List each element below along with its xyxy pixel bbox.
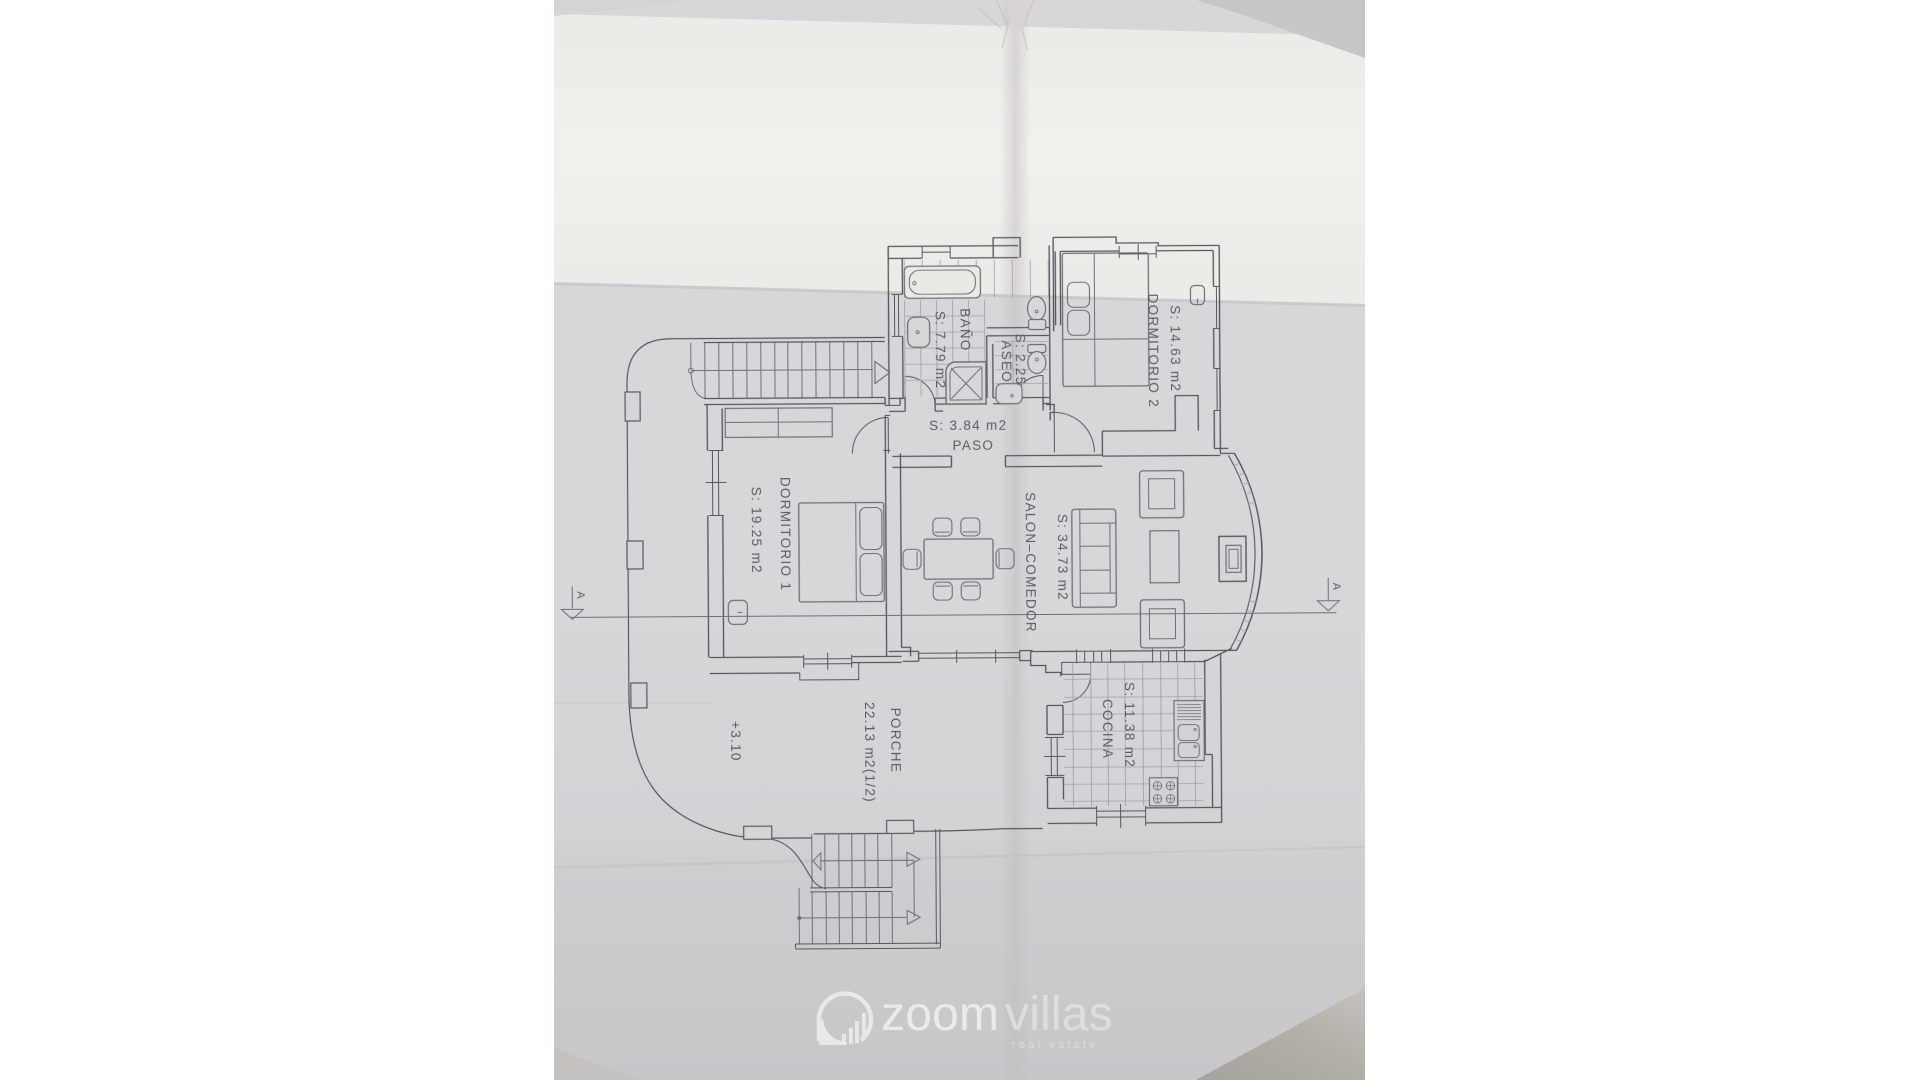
svg-text:PASO: PASO <box>952 438 994 453</box>
svg-text:SALON–COMEDOR: SALON–COMEDOR <box>1023 492 1039 633</box>
svg-text:S: 34.73 m2: S: 34.73 m2 <box>1055 514 1071 601</box>
svg-text:A: A <box>1330 583 1342 591</box>
svg-text:BAÑO: BAÑO <box>958 308 973 352</box>
svg-text:A: A <box>574 591 586 599</box>
svg-text:S: 7.79 m2: S: 7.79 m2 <box>933 311 948 389</box>
svg-text:villas: villas <box>1005 988 1113 1041</box>
svg-text:+3.10: +3.10 <box>728 721 743 762</box>
svg-text:22.13 m2(1/2): 22.13 m2(1/2) <box>862 702 878 803</box>
svg-text:DORMITORIO 1: DORMITORIO 1 <box>778 477 794 591</box>
svg-text:S: 11.38 m2: S: 11.38 m2 <box>1122 682 1138 768</box>
svg-text:S: 3.84 m2: S: 3.84 m2 <box>929 418 1007 433</box>
svg-text:PORCHE: PORCHE <box>888 708 903 774</box>
svg-text:DORMITORIO 2: DORMITORIO 2 <box>1145 294 1161 408</box>
svg-text:S: 19.25 m2: S: 19.25 m2 <box>749 487 765 574</box>
svg-text:zoom: zoom <box>881 988 999 1041</box>
svg-text:real estate: real estate <box>1012 1039 1099 1051</box>
svg-text:S: 2.25: S: 2.25 <box>1013 334 1028 386</box>
svg-text:S: 14.63 m2: S: 14.63 m2 <box>1168 305 1184 392</box>
svg-text:ASEO: ASEO <box>999 340 1014 383</box>
svg-text:COCINA: COCINA <box>1100 699 1115 759</box>
